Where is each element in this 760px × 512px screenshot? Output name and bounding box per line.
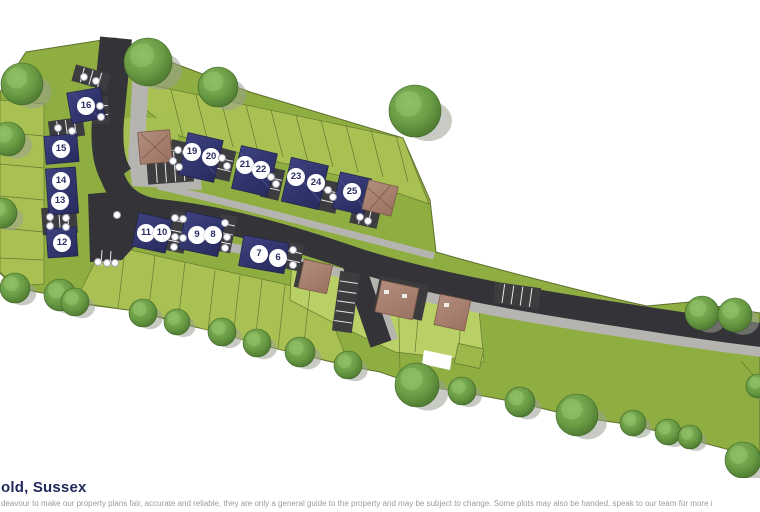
parking-space-dot <box>364 217 372 225</box>
parking-space-dot <box>94 258 102 266</box>
plot-marker-12[interactable]: 12 <box>53 234 71 252</box>
parking-space-dot <box>92 77 100 85</box>
disclaimer-text: deavour to make our property plans fair,… <box>1 499 760 508</box>
parking-space-dot <box>111 259 119 267</box>
plot-marker-24[interactable]: 24 <box>307 174 325 192</box>
parking-space-dot <box>221 219 229 227</box>
parking-space-dot <box>329 193 337 201</box>
parking-space-dot <box>68 127 76 135</box>
parking-space-dot <box>171 233 179 241</box>
parking-space-dot <box>223 233 231 241</box>
parking-space-dot <box>97 113 105 121</box>
parking-space-dot <box>289 246 297 254</box>
tree-icon <box>725 442 760 478</box>
existing-house-c <box>298 259 332 293</box>
parking-space-dot <box>46 222 54 230</box>
parking-space-dot <box>221 244 229 252</box>
parking-space-dot <box>179 234 187 242</box>
existing-house-b <box>434 294 471 331</box>
plot-marker-13[interactable]: 13 <box>51 192 69 210</box>
parking-space-dot <box>113 211 121 219</box>
plot-marker-23[interactable]: 23 <box>287 168 305 186</box>
development-title: old, Sussex <box>1 479 87 496</box>
plot-marker-14[interactable]: 14 <box>52 172 70 190</box>
plot-marker-16[interactable]: 16 <box>77 97 95 115</box>
plot-marker-15[interactable]: 15 <box>52 140 70 158</box>
parking-space-dot <box>80 73 88 81</box>
parking-space-dot <box>179 215 187 223</box>
parking-space-dot <box>54 124 62 132</box>
tree-icon <box>389 85 452 141</box>
parking-space-dot <box>175 163 183 171</box>
site-plan: 16151413121110987619202122232425 <box>0 0 760 478</box>
garage-court-building <box>138 130 173 165</box>
parking-space-dot <box>272 180 280 188</box>
parking-space-dot <box>62 214 70 222</box>
parking-space-dot <box>171 214 179 222</box>
parking-space-dot <box>223 162 231 170</box>
parking-space-dot <box>62 223 70 231</box>
entrance-road <box>107 38 118 178</box>
plot-marker-8[interactable]: 8 <box>204 226 222 244</box>
parking-space-dot <box>174 146 182 154</box>
parking-space-dot <box>356 213 364 221</box>
site-plan-drawing <box>0 0 760 478</box>
plot-marker-7[interactable]: 7 <box>250 245 268 263</box>
plot-marker-19[interactable]: 19 <box>183 143 201 161</box>
parking-space-dot <box>218 154 226 162</box>
parking-space-dot <box>103 259 111 267</box>
parking-space-dot <box>46 213 54 221</box>
parking-space-dot <box>96 102 104 110</box>
parking-space-dot <box>170 243 178 251</box>
plot-marker-10[interactable]: 10 <box>153 224 171 242</box>
siteplan-page: 16151413121110987619202122232425 old, Su… <box>0 0 760 512</box>
parking-space-dot <box>289 261 297 269</box>
caption-bar: old, Sussex deavour to make our property… <box>0 478 760 512</box>
plot-marker-6[interactable]: 6 <box>269 249 287 267</box>
plot-marker-25[interactable]: 25 <box>343 183 361 201</box>
